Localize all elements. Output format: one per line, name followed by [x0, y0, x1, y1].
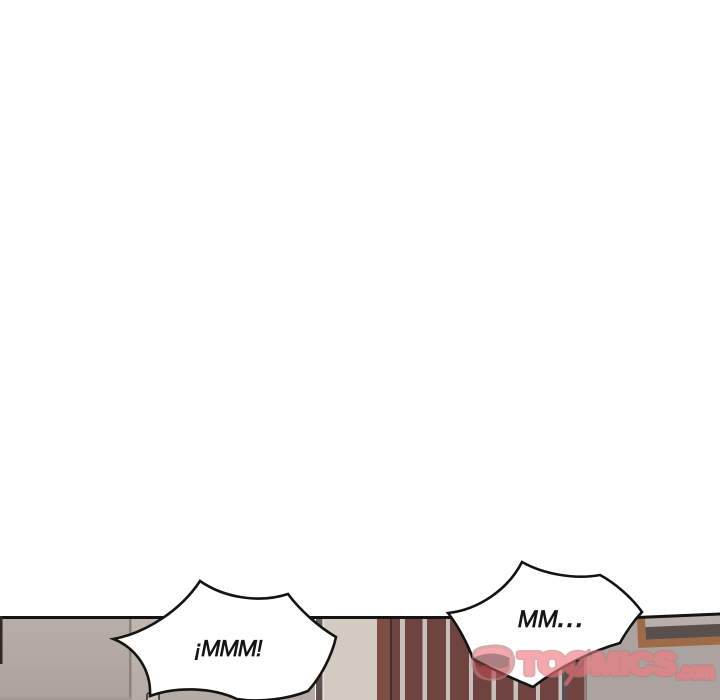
svg-text:TOOMICS: TOOMICS	[519, 648, 676, 681]
svg-text:MM...: MM...	[518, 606, 586, 633]
svg-text:.com: .com	[677, 661, 714, 683]
svg-text:¡MMM!: ¡MMM!	[194, 635, 263, 661]
